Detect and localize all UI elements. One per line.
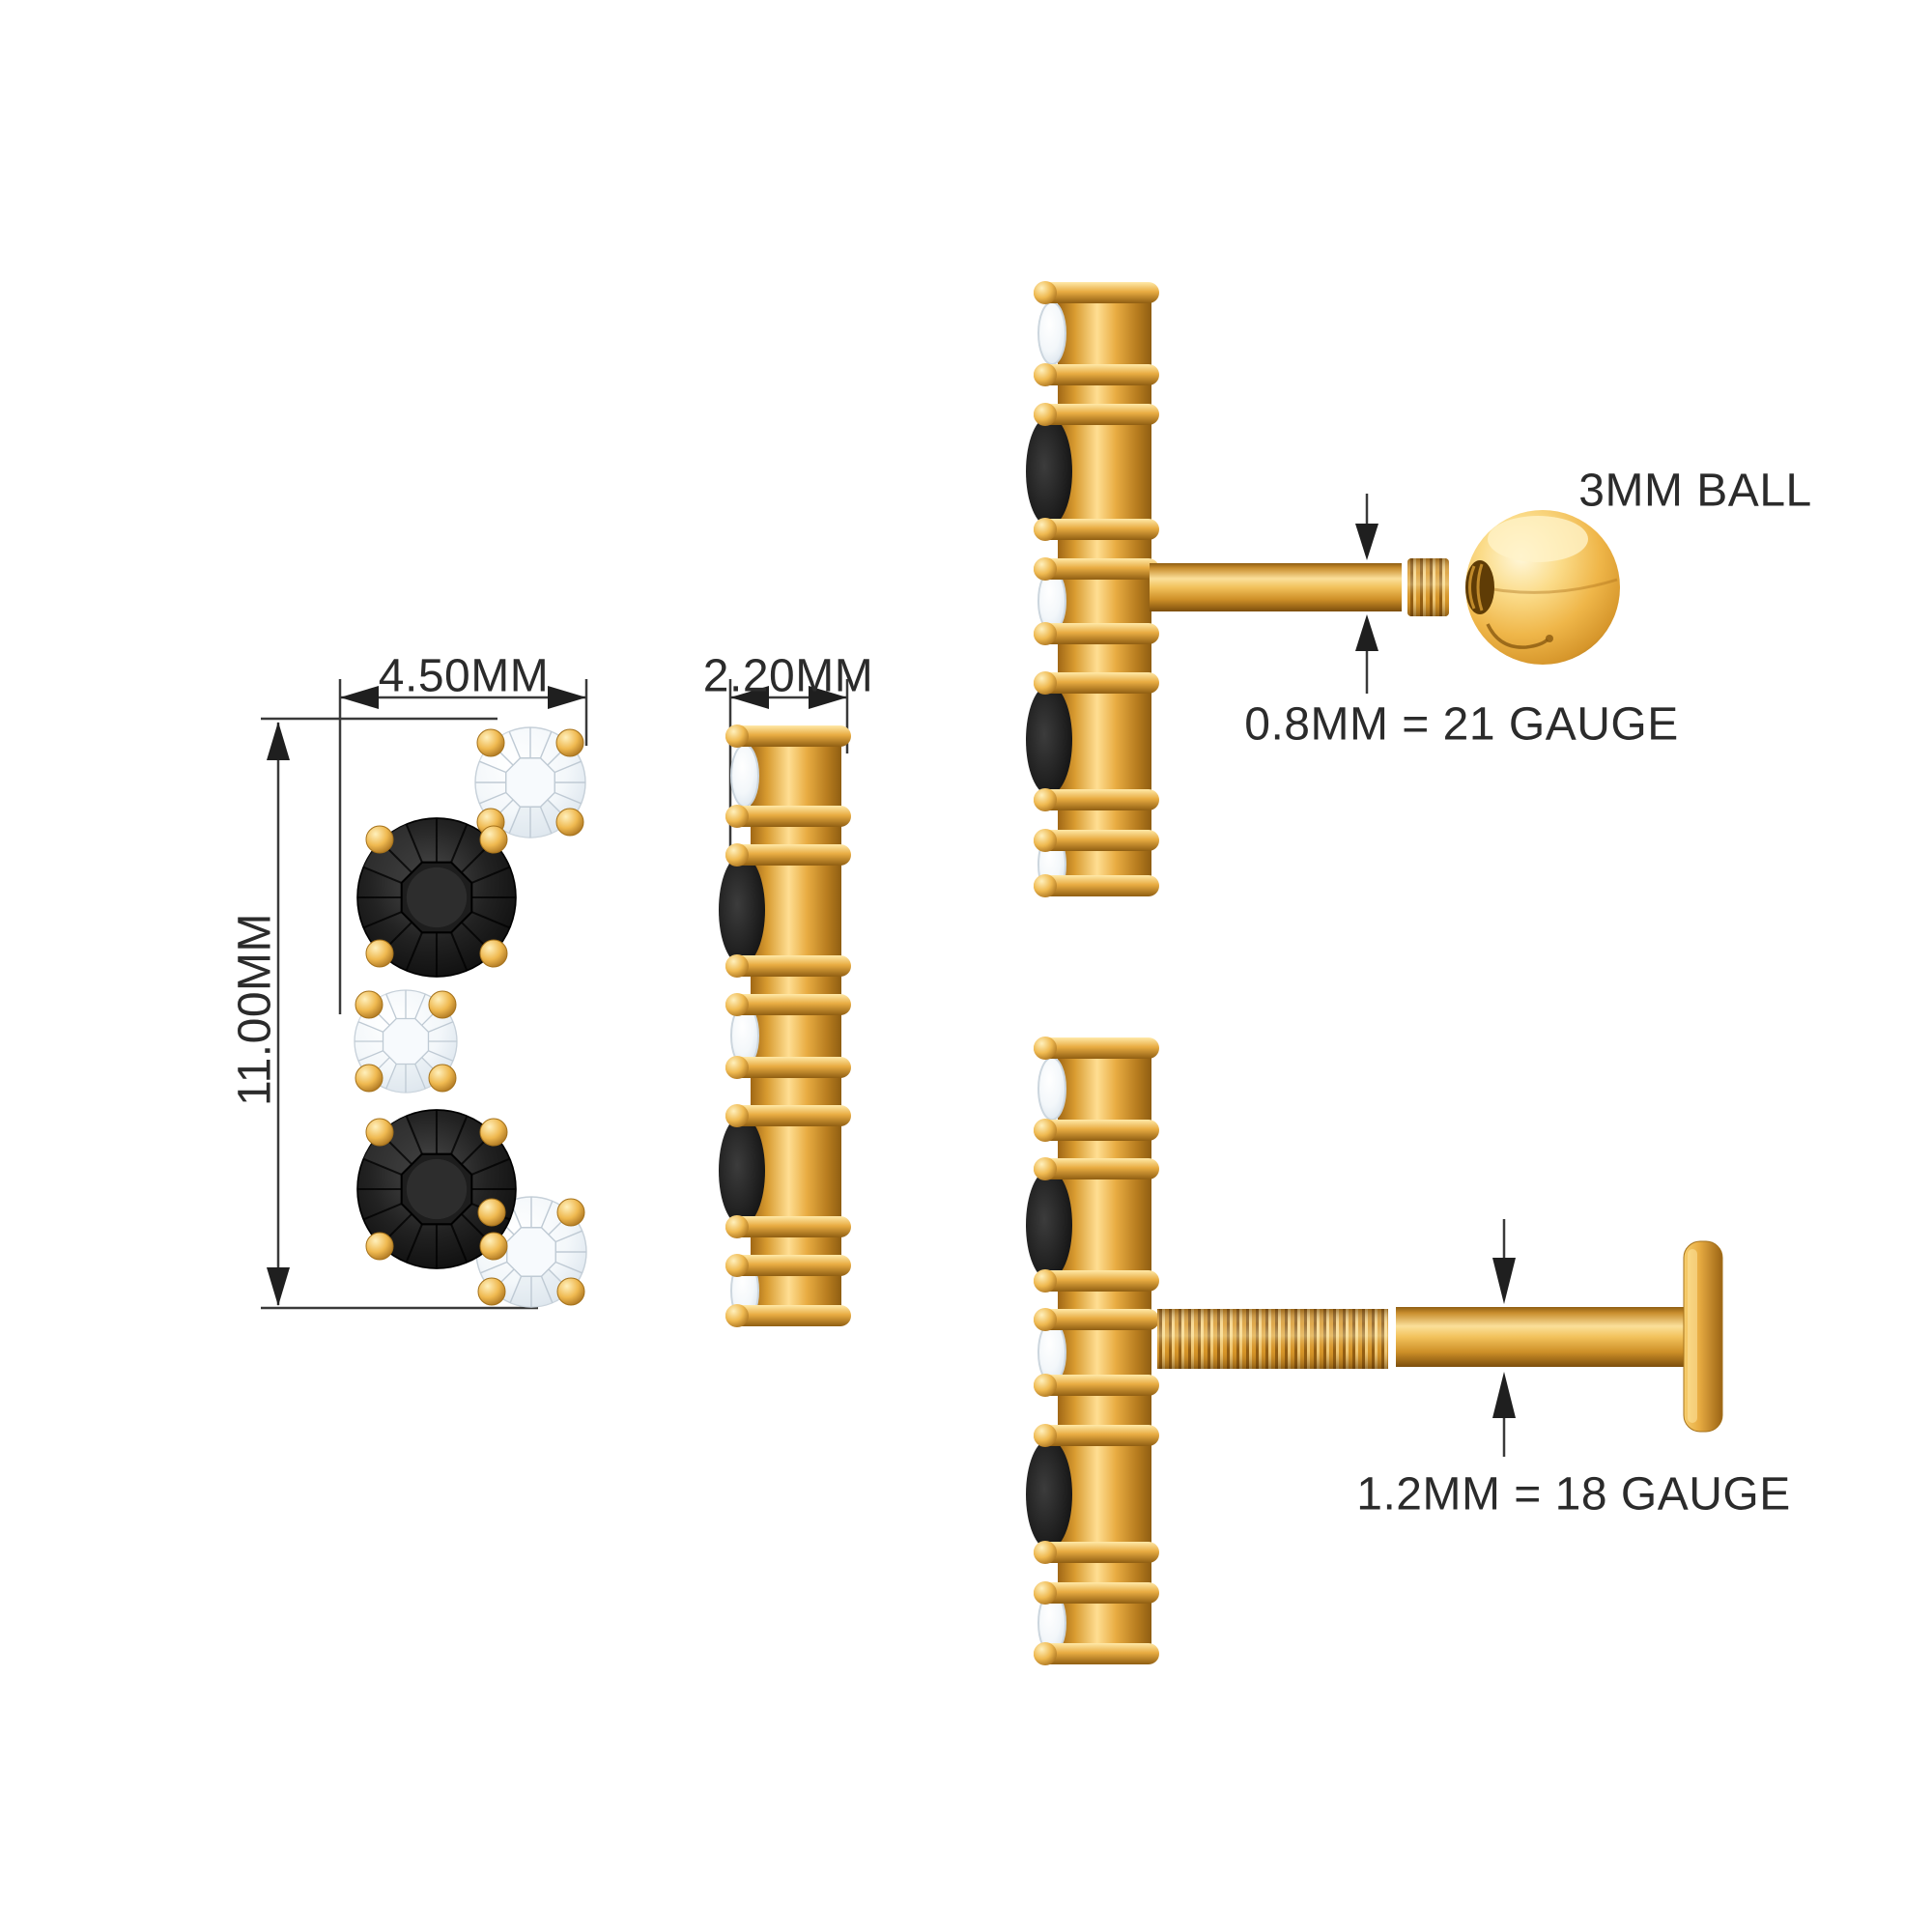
arrow-up-icon [1492, 1372, 1516, 1418]
arrow-down-icon [267, 1267, 290, 1306]
diagram-graphics [0, 0, 1932, 1932]
diamond-edge [1038, 302, 1065, 364]
arrow-down-icon [1492, 1258, 1516, 1304]
screw-back-view [1026, 281, 1620, 897]
arrow-right-icon [548, 686, 586, 709]
threaded-post-tip [1407, 558, 1449, 616]
black-stone-edge [1026, 416, 1072, 526]
front-view [355, 727, 586, 1307]
arrow-up-icon [1355, 614, 1378, 651]
flat-back-view [1026, 1037, 1722, 1665]
labret-disc [1684, 1241, 1722, 1432]
black-stone-edge [1026, 1170, 1072, 1280]
flat-post-gauge-label: 1.2MM = 18 GAUGE [1356, 1468, 1791, 1521]
ball-end [1465, 510, 1620, 665]
side-view [719, 724, 851, 1327]
black-stone-edge [1026, 685, 1072, 795]
smooth-post [1150, 563, 1402, 611]
black-stone-edge [719, 1116, 765, 1226]
arrow-left-icon [340, 686, 379, 709]
smooth-post [1396, 1307, 1684, 1367]
diamond-edge [731, 745, 758, 807]
front-height-label: 11.00MM [229, 913, 282, 1106]
jewelry-dimension-diagram: 4.50MM 2.20MM 11.00MM 3MM BALL 0.8MM = 2… [0, 0, 1932, 1932]
ball-size-label: 3MM BALL [1578, 465, 1811, 518]
threaded-post [1157, 1309, 1388, 1369]
screw-post-gauge-label: 0.8MM = 21 GAUGE [1244, 698, 1679, 752]
black-stone-edge [719, 855, 765, 965]
arrow-up-icon [267, 722, 290, 760]
diamond-edge [1038, 1058, 1065, 1120]
black-stone-edge [1026, 1439, 1072, 1549]
arrow-down-icon [1355, 524, 1378, 560]
side-depth-label: 2.20MM [703, 650, 873, 703]
front-width-label: 4.50MM [379, 650, 549, 703]
